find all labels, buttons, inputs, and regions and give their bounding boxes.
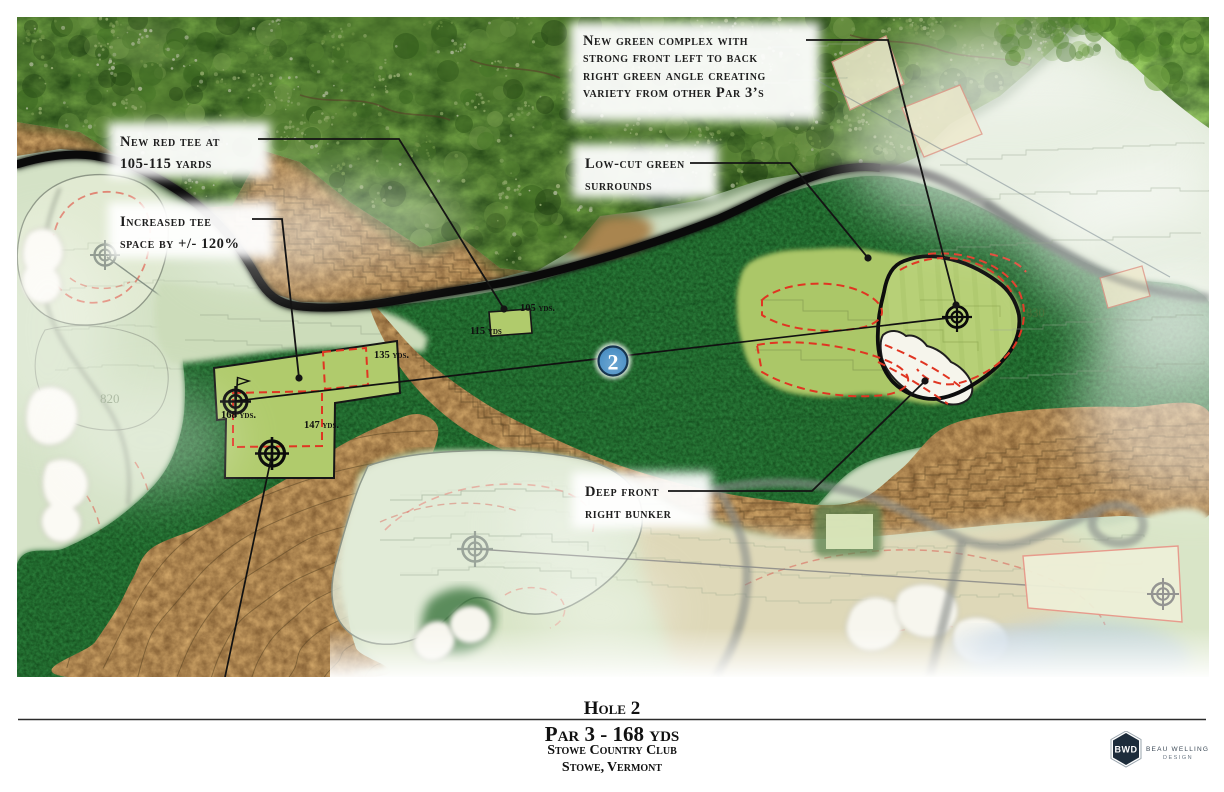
svg-text:2: 2 bbox=[608, 350, 619, 375]
svg-text:BWD: BWD bbox=[1115, 745, 1138, 755]
svg-text:BEAU WELLING: BEAU WELLING bbox=[1146, 746, 1209, 753]
svg-text:DESIGN: DESIGN bbox=[1163, 755, 1193, 761]
svg-text:820: 820 bbox=[100, 391, 120, 406]
svg-text:830: 830 bbox=[1026, 306, 1045, 320]
